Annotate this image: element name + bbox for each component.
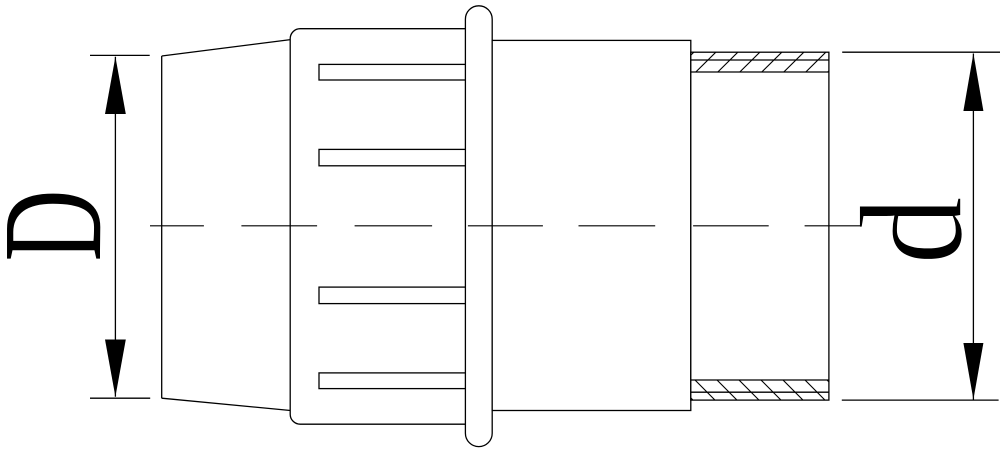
svg-text:D: D [0,190,131,262]
svg-text:d: d [831,196,994,264]
